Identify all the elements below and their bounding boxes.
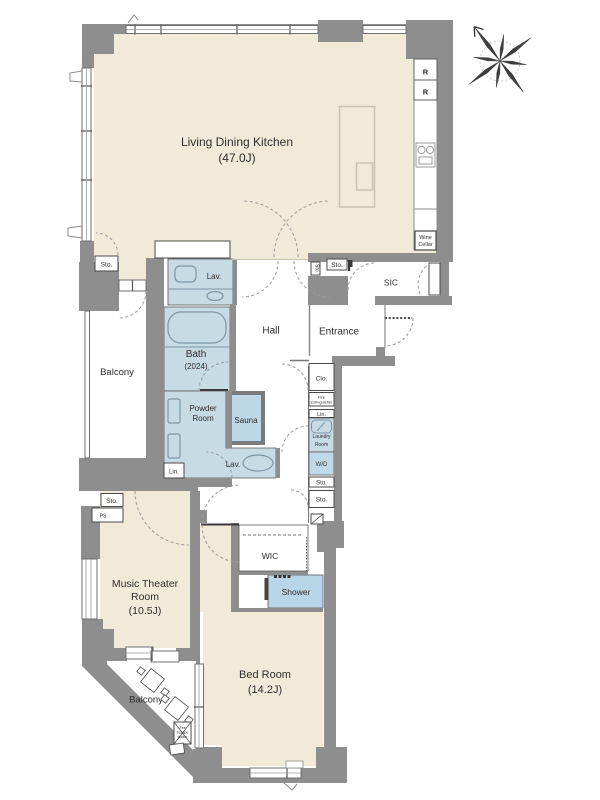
svg-text:Powder: Powder <box>189 404 216 413</box>
svg-text:WIC: WIC <box>262 551 279 561</box>
svg-text:Balcony: Balcony <box>129 695 163 706</box>
svg-text:Escape: Escape <box>177 731 189 735</box>
svg-text:Extinguisher: Extinguisher <box>310 400 333 405</box>
svg-text:Room: Room <box>192 414 214 423</box>
svg-text:Clo.: Clo. <box>316 376 328 383</box>
svg-text:(10.5J): (10.5J) <box>129 605 162 617</box>
svg-text:Bed Room: Bed Room <box>239 669 291 681</box>
svg-text:PS: PS <box>100 514 107 520</box>
svg-text:(2024): (2024) <box>184 362 207 371</box>
svg-text:(47.0J): (47.0J) <box>218 151 255 165</box>
svg-text:Sauna: Sauna <box>234 416 258 425</box>
svg-text:R: R <box>423 88 429 97</box>
svg-text:Sto.: Sto. <box>101 262 113 269</box>
svg-text:Sto.: Sto. <box>314 264 320 273</box>
svg-text:SIC: SIC <box>384 278 398 288</box>
svg-text:Bath: Bath <box>186 349 207 360</box>
svg-text:Balcony: Balcony <box>100 367 134 378</box>
svg-text:Lin.: Lin. <box>317 412 326 418</box>
svg-text:Sto.: Sto. <box>106 498 118 505</box>
svg-text:R: R <box>423 68 429 77</box>
svg-text:Shower: Shower <box>282 587 311 597</box>
svg-text:(14.2J): (14.2J) <box>248 684 282 696</box>
svg-text:Wine: Wine <box>419 235 432 241</box>
svg-text:Sto.: Sto. <box>316 497 328 504</box>
svg-text:Music Theater: Music Theater <box>112 578 179 590</box>
svg-text:ladder: ladder <box>178 735 189 739</box>
svg-text:Lav.: Lav. <box>226 460 241 469</box>
svg-text:Hall: Hall <box>262 326 279 337</box>
svg-text:Room: Room <box>131 591 159 603</box>
svg-text:Entrance: Entrance <box>319 327 359 338</box>
svg-text:Cellar: Cellar <box>418 242 433 248</box>
svg-text:W/D: W/D <box>316 462 328 468</box>
svg-text:Lav.: Lav. <box>207 272 222 281</box>
svg-text:Room: Room <box>315 442 328 448</box>
svg-text:Sto.: Sto. <box>331 262 343 269</box>
svg-text:Laundry: Laundry <box>312 434 331 440</box>
svg-text:Fire: Fire <box>179 726 185 730</box>
svg-text:Lin.: Lin. <box>169 470 179 476</box>
svg-text:Living Dining Kitchen: Living Dining Kitchen <box>181 135 293 149</box>
svg-text:Sto.: Sto. <box>316 481 327 487</box>
